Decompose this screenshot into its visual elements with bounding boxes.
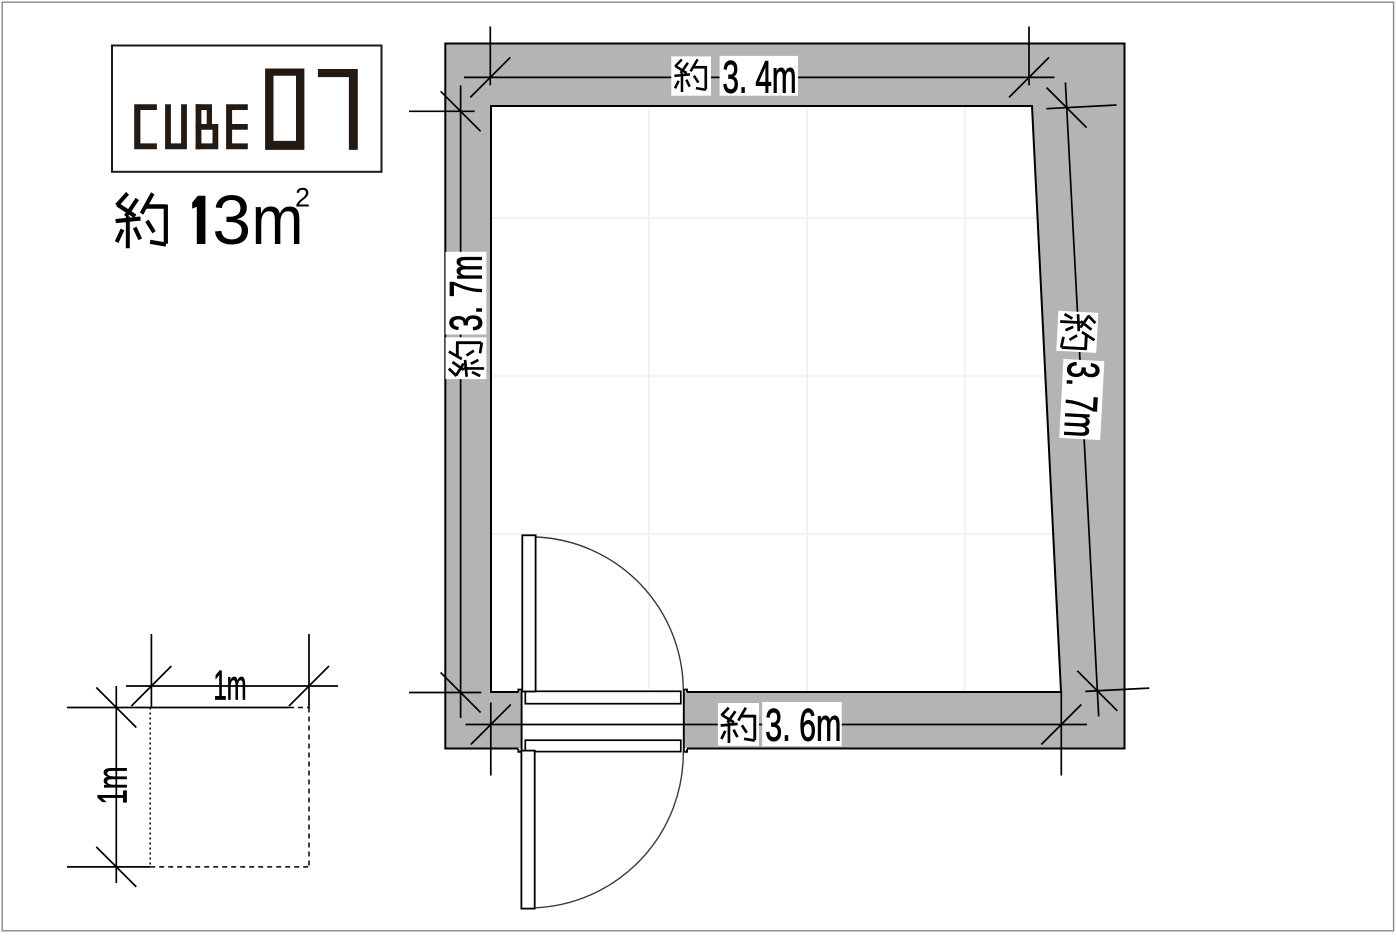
svg-text:3. 6m: 3. 6m <box>765 700 841 751</box>
svg-text:1m: 1m <box>89 767 136 805</box>
svg-text:1m: 1m <box>214 662 247 709</box>
svg-text:3. 4m: 3. 4m <box>723 51 797 102</box>
svg-text:3: 3 <box>212 181 251 259</box>
svg-text:3. 7m: 3. 7m <box>1054 360 1109 439</box>
svg-text:2: 2 <box>295 183 310 213</box>
svg-text:3. 7m: 3. 7m <box>441 255 492 331</box>
